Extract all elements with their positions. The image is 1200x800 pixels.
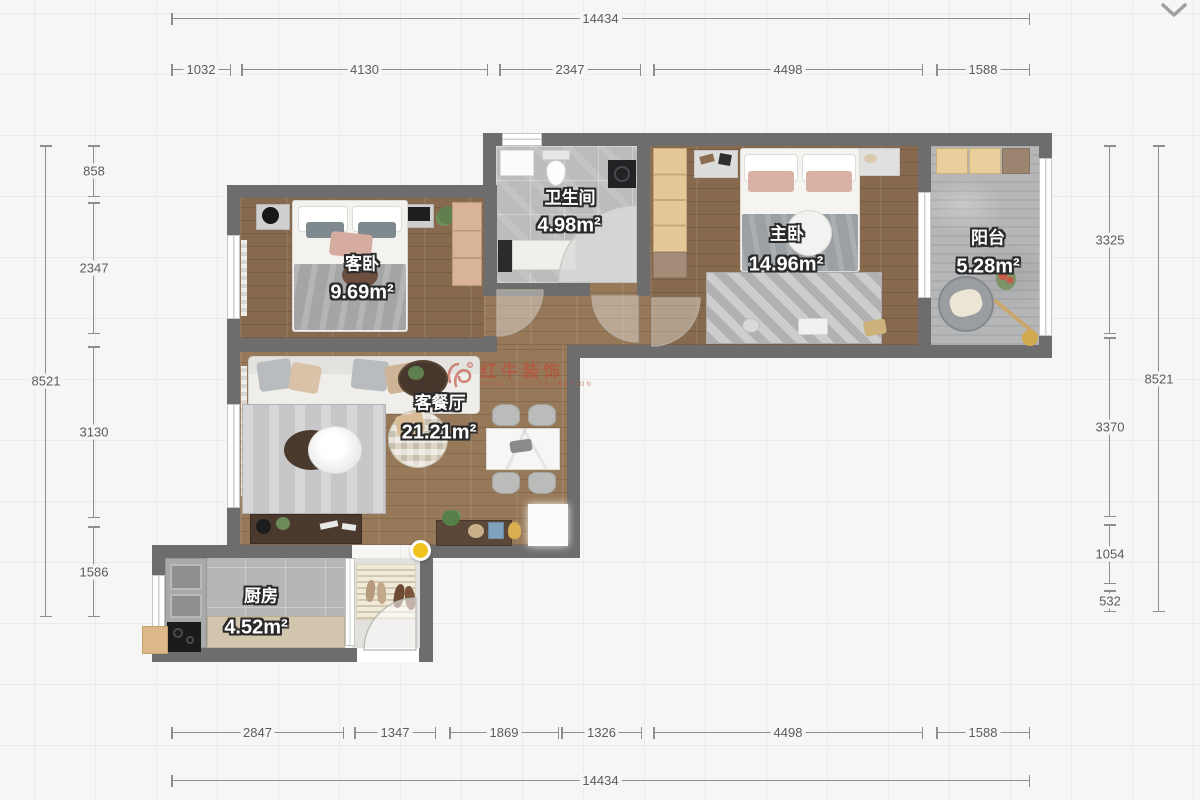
curtain [241, 240, 247, 316]
plant-icon [442, 510, 460, 526]
dim-left-1: 858 [93, 146, 94, 196]
dim-top-3: 2347 [500, 69, 640, 70]
master-pillow-pink [748, 171, 794, 192]
label-living-dining-area: 21.21m² [402, 422, 477, 445]
dim-top-5: 1588 [937, 69, 1029, 70]
wall [227, 338, 490, 352]
master-pillow-pink [806, 171, 852, 192]
balcony-cabinet [969, 148, 1001, 174]
dim-left-total: 8521 [45, 146, 46, 616]
door-arcs [0, 0, 1200, 800]
chevron-down-icon[interactable] [1152, 0, 1196, 22]
stove-burner [173, 628, 183, 638]
window [227, 235, 240, 319]
dining-chair [492, 404, 520, 426]
decor-fish [508, 522, 521, 539]
dim-bottom-4: 1326 [562, 732, 641, 733]
plant-icon [276, 517, 290, 530]
kitchen-stove [167, 622, 201, 652]
dim-top-total: 14434 [172, 18, 1029, 19]
window [502, 133, 542, 146]
record-player [262, 207, 279, 224]
gas-meter-cabinet [142, 626, 168, 654]
wall [637, 146, 650, 296]
master-wardrobe [653, 148, 687, 252]
coffee-table-white [308, 426, 362, 474]
label-bathroom: 卫生间 [545, 184, 596, 209]
wall [483, 283, 590, 296]
label-kitchen-area: 4.52m² [224, 617, 287, 640]
panorama-marker[interactable] [410, 540, 431, 561]
dim-bottom-5: 4498 [654, 732, 922, 733]
watermark: R 红牛装饰 HONG NIU DECORATION [446, 360, 593, 390]
master-wardrobe-lower [653, 252, 687, 278]
shower-tray [500, 150, 534, 176]
stove-burner [186, 636, 194, 644]
wall [568, 345, 1052, 358]
dining-chair [528, 404, 556, 426]
label-living-dining: 客餐厅 [415, 389, 466, 414]
dim-left-4: 1586 [93, 527, 94, 616]
sofa-pillow [351, 358, 390, 392]
plant-icon [408, 366, 424, 380]
dim-right-3: 1054 [1109, 525, 1110, 583]
master-rug-chevron [706, 272, 882, 344]
label-balcony: 阳台 [971, 224, 1005, 249]
dresser-tray [798, 318, 828, 335]
washing-machine-drum [614, 166, 630, 182]
bedside-decor [718, 153, 732, 166]
dim-top-4: 4498 [654, 69, 922, 70]
toilet [542, 150, 570, 160]
dim-right-4: 532 [1109, 591, 1110, 611]
vanity-stool [742, 318, 760, 333]
watermark-subtitle: HONG NIU DECORATION [480, 382, 593, 388]
dim-right-1: 3325 [1109, 146, 1110, 333]
vanity-cabinet [498, 240, 512, 272]
watermark-title: 红牛装饰 [480, 363, 593, 380]
label-kitchen: 厨房 [244, 582, 278, 607]
dining-chair [528, 472, 556, 494]
bedside-rug-right [854, 148, 900, 176]
wall [152, 545, 352, 558]
wall [483, 133, 496, 185]
dim-bottom-2: 1347 [355, 732, 435, 733]
speaker [256, 519, 271, 534]
dim-bottom-6: 1588 [937, 732, 1029, 733]
dim-left-2: 2347 [93, 203, 94, 333]
window [1039, 158, 1052, 336]
entry-door-opening [357, 648, 419, 662]
dim-bottom-total: 14434 [172, 780, 1029, 781]
dim-bottom-1: 2847 [172, 732, 343, 733]
dining-chair [492, 472, 520, 494]
sofa-pillow [288, 362, 322, 395]
label-balcony-area: 5.28m² [956, 256, 1019, 279]
label-guest-bedroom-area: 9.69m² [330, 282, 393, 305]
window [152, 575, 165, 633]
guest-wardrobe [452, 202, 482, 286]
wall [640, 283, 650, 296]
wall [227, 185, 497, 198]
dim-top-1: 1032 [172, 69, 230, 70]
wall [484, 198, 497, 288]
wall [483, 133, 1052, 146]
drying-pole-end [1022, 330, 1038, 346]
label-master-bedroom-area: 14.96m² [749, 254, 824, 277]
tv-on-nightstand [406, 207, 430, 221]
balcony-cabinet-dark [1002, 148, 1030, 174]
dim-right-total: 8521 [1158, 146, 1159, 611]
balcony-glass-door [918, 192, 931, 298]
kitchen-sink [170, 564, 202, 590]
label-guest-bedroom: 客卧 [345, 250, 379, 275]
basket [468, 524, 484, 538]
kitchen-sink [170, 594, 202, 618]
dim-right-2: 3370 [1109, 338, 1110, 516]
floorplan-canvas[interactable]: 14434 1032 4130 2347 4498 1588 8521 858 … [0, 0, 1200, 800]
bull-logo-icon: R [446, 360, 474, 390]
dim-bottom-3: 1869 [450, 732, 558, 733]
label-bathroom-area: 4.98m² [537, 215, 600, 238]
bedside-decor [864, 154, 877, 163]
svg-text:R: R [469, 363, 472, 368]
ceiling-light-panel [528, 504, 568, 546]
storage-box-blue [488, 522, 504, 539]
wall [433, 545, 580, 558]
label-master-bedroom: 主卧 [770, 220, 804, 245]
dim-top-2: 4130 [242, 69, 487, 70]
balcony-cabinet [936, 148, 968, 174]
wall [420, 545, 433, 662]
dim-left-3: 3130 [93, 347, 94, 517]
kitchen-sliding-door [345, 558, 355, 646]
window [227, 404, 240, 508]
